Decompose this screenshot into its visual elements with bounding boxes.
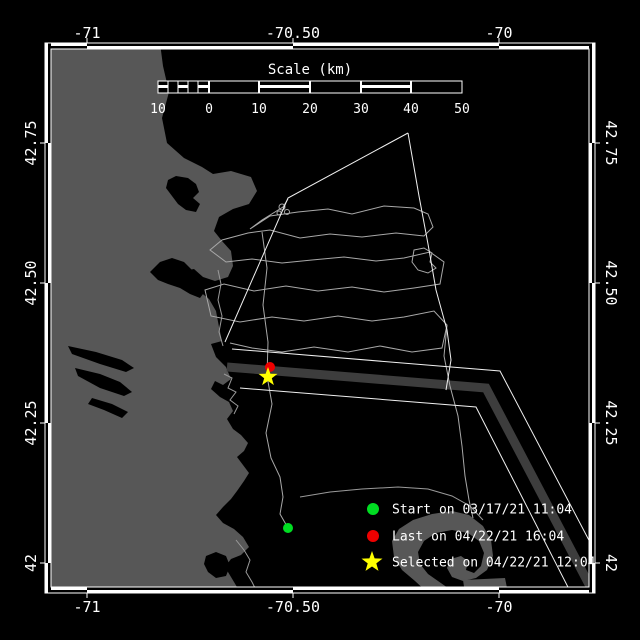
scalebar-number: 30 xyxy=(353,102,369,117)
right-axis-label: 42 xyxy=(602,554,620,572)
legend-last-marker xyxy=(367,530,379,542)
scalebar-number: 20 xyxy=(302,102,318,117)
scalebar-separator xyxy=(208,81,210,93)
bottom-axis-label: -70 xyxy=(485,598,512,616)
legend-label: Start on 03/17/21 11:04 xyxy=(392,503,572,518)
left-axis-label: 42.25 xyxy=(22,400,40,445)
legend: Start on 03/17/21 11:04Last on 04/22/21 … xyxy=(362,503,596,571)
scalebar-stripe xyxy=(259,85,310,88)
right-axis-label: 42.75 xyxy=(602,120,620,165)
scalebar-separator xyxy=(410,81,412,93)
left-axis-label: 42.50 xyxy=(22,260,40,305)
scalebar-separator xyxy=(258,81,260,93)
scalebar-number: 40 xyxy=(403,102,419,117)
right-axis-label: 42.50 xyxy=(602,260,620,305)
scalebar-number: 0 xyxy=(205,102,213,117)
last-position-marker xyxy=(265,362,275,372)
survey-edge-left xyxy=(225,133,408,342)
scalebar-separator xyxy=(360,81,362,93)
bottom-axis-label: -70.50 xyxy=(266,598,320,616)
scalebar-stripe xyxy=(198,85,209,88)
left-axis-label: 42.75 xyxy=(22,120,40,165)
bottom-axis-label: -71 xyxy=(73,598,100,616)
legend-selected-marker xyxy=(362,551,383,571)
scalebar-stripe xyxy=(178,85,188,88)
scalebar-number: 10 xyxy=(150,102,166,117)
scalebar-subseparator xyxy=(188,81,189,93)
legend-start-marker xyxy=(367,503,379,515)
track-descent-east xyxy=(444,325,473,518)
scalebar-subseparator xyxy=(168,81,169,93)
scalebar-stripe xyxy=(361,85,411,88)
scalebar-number: 10 xyxy=(251,102,267,117)
survey-track xyxy=(205,199,447,352)
scalebar-stripe xyxy=(158,85,168,88)
left-axis-label: 42 xyxy=(22,554,40,572)
right-axis-label: 42.25 xyxy=(602,400,620,445)
top-axis-label: -70 xyxy=(485,24,512,42)
scale-bar: Scale (km)1001020304050 xyxy=(150,62,470,117)
scalebar-title: Scale (km) xyxy=(268,62,352,78)
map-figure: -71-70.50-70-71-70.50-7042.7542.5042.254… xyxy=(0,0,640,640)
legend-label: Selected on 04/22/21 12:04 xyxy=(392,556,596,571)
scalebar-subseparator xyxy=(198,81,199,93)
map-canvas: -71-70.50-70-71-70.50-7042.7542.5042.254… xyxy=(0,0,640,640)
mainland xyxy=(46,43,257,593)
top-axis-label: -70.50 xyxy=(266,24,320,42)
scalebar-subseparator xyxy=(178,81,179,93)
top-axis-label: -71 xyxy=(73,24,100,42)
legend-label: Last on 04/22/21 16:04 xyxy=(392,530,564,545)
scalebar-separator xyxy=(309,81,311,93)
start-position-marker xyxy=(283,523,293,533)
scalebar-number: 50 xyxy=(454,102,470,117)
